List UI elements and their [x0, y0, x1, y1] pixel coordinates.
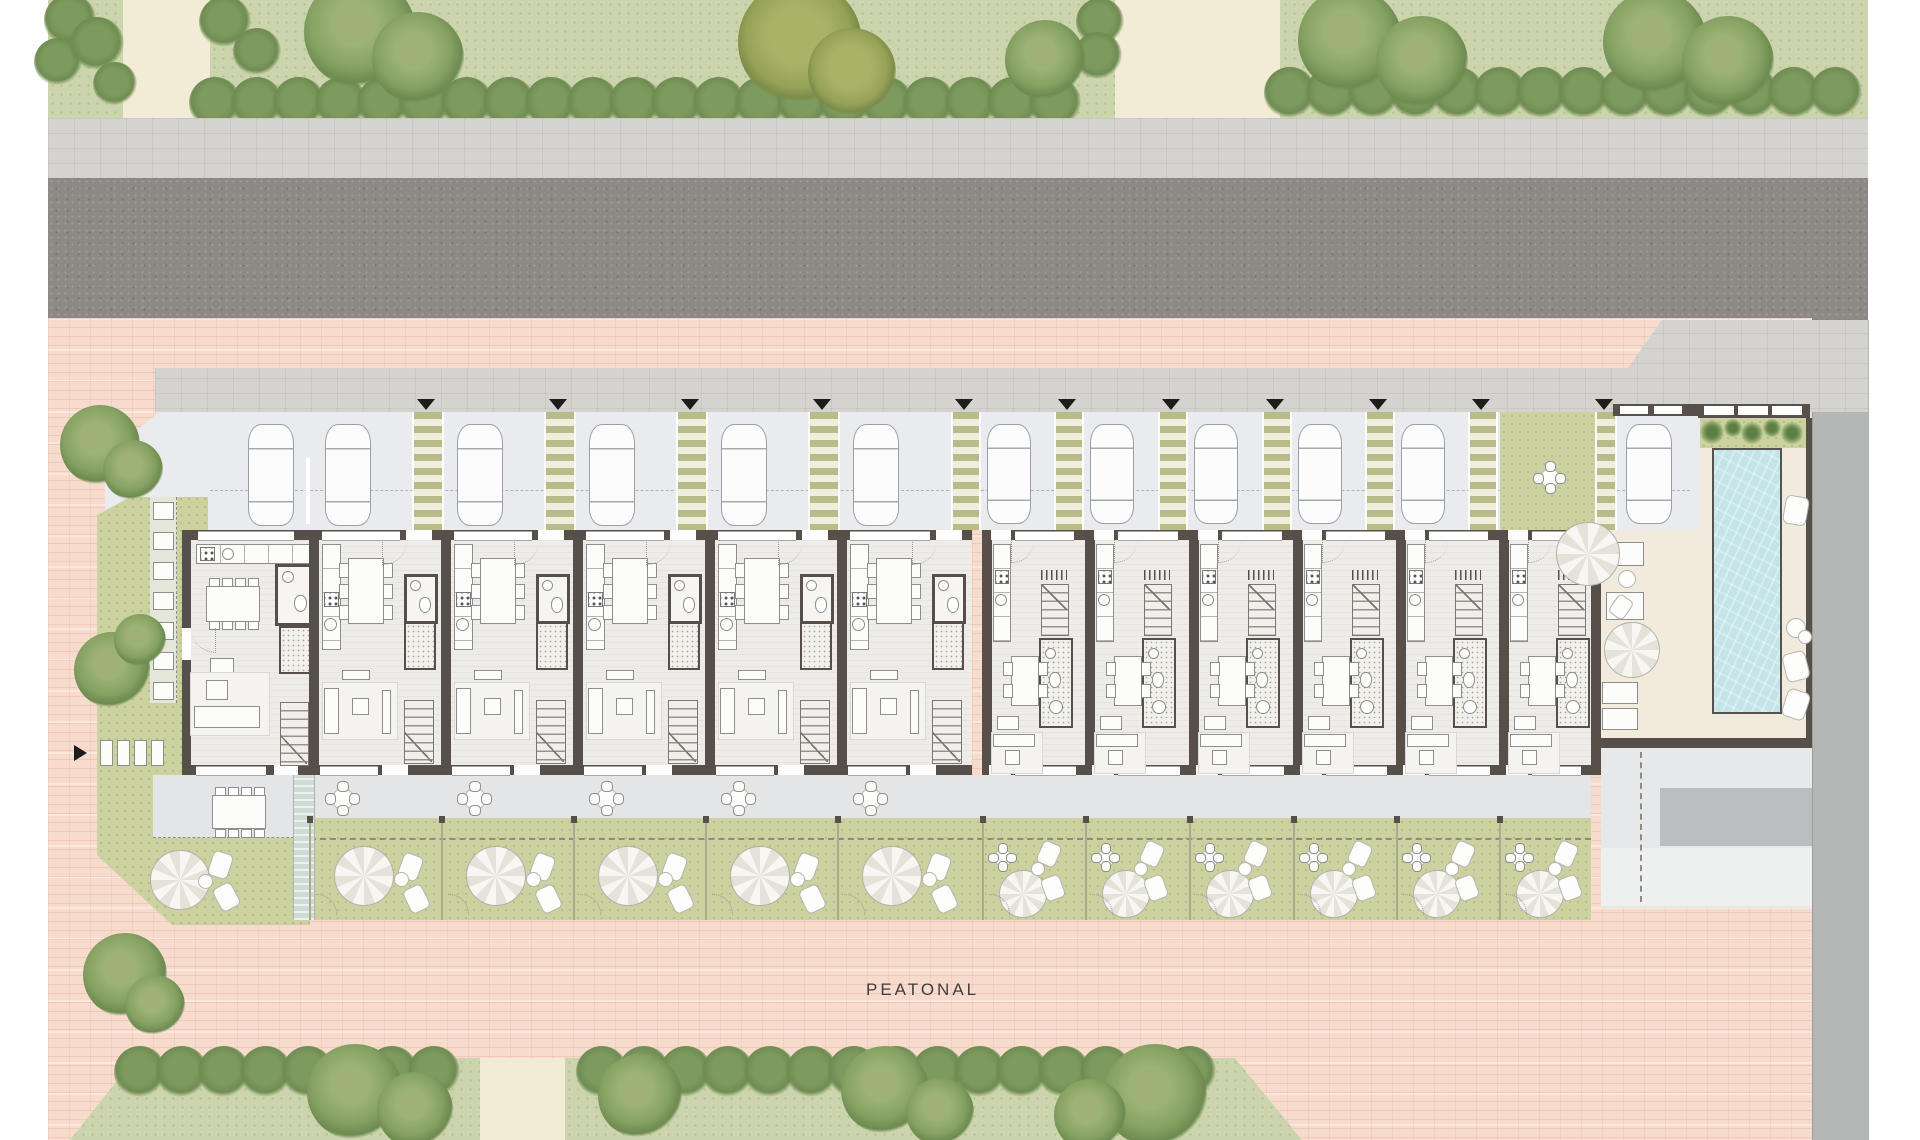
shower-room [800, 622, 832, 670]
toilet-icon [1152, 672, 1164, 688]
bistro-chair [1205, 843, 1215, 854]
door-gap [538, 530, 564, 540]
coffee-table [1005, 750, 1020, 765]
dining-table [1114, 656, 1142, 706]
bistro-chair [589, 793, 600, 805]
chair [248, 621, 259, 630]
park-path [1115, 0, 1280, 118]
window [1772, 406, 1802, 415]
door-gap [382, 765, 408, 775]
bistro-chair [1545, 483, 1556, 494]
car [721, 424, 767, 526]
garden-fence [309, 818, 311, 920]
chair [779, 563, 789, 578]
window [848, 766, 906, 776]
pouf [1548, 862, 1562, 876]
stove-icon [1409, 570, 1423, 584]
chair [1210, 662, 1220, 676]
sofa [1510, 734, 1552, 747]
sink-icon [720, 618, 733, 631]
garden-dash-line [310, 838, 1591, 840]
bathroom [536, 574, 570, 624]
chair [779, 605, 789, 620]
entry-path [1595, 412, 1617, 530]
deck-parasol [1604, 622, 1660, 678]
garden-fence [982, 818, 984, 920]
stair-diag [1455, 584, 1481, 610]
bistro-chair [745, 793, 756, 805]
bistro-chair [721, 793, 732, 805]
garden-fence [837, 818, 839, 920]
tree-icon [1376, 16, 1468, 108]
bistro-chair [325, 793, 336, 805]
console [738, 670, 766, 680]
entry-arrow [1472, 399, 1490, 410]
bistro-chair [1195, 853, 1206, 863]
fence-post [1291, 816, 1297, 823]
pedestrian-street-label: PEATONAL [866, 980, 979, 1000]
shower-room [536, 622, 568, 670]
bistro-chair [1101, 861, 1111, 872]
kitchen-counter [1510, 544, 1528, 642]
console [1204, 716, 1226, 730]
tree-icon [372, 12, 464, 104]
terrace-bistro-table [590, 782, 622, 814]
sofa [852, 688, 867, 734]
chair [383, 605, 393, 620]
shower-room [932, 622, 964, 670]
console [474, 670, 502, 680]
bathroom [1350, 638, 1384, 728]
car [457, 424, 503, 526]
bistro-chair [1402, 853, 1413, 863]
dining-table [480, 558, 516, 624]
entry-arrow [813, 399, 831, 410]
chair [603, 605, 613, 620]
shower-room [668, 622, 700, 670]
car [589, 424, 635, 526]
window [584, 766, 642, 776]
hedge-icon [93, 62, 137, 106]
bathroom [404, 574, 438, 624]
entry-arrow [1595, 399, 1613, 410]
sink-icon [1148, 648, 1159, 659]
garden-fence [1499, 818, 1501, 920]
dining-table [1528, 656, 1556, 706]
sofa [1407, 734, 1449, 747]
chair [911, 563, 921, 578]
bistro-chair [1109, 853, 1120, 863]
bathroom [800, 574, 834, 624]
side-street-east [1812, 320, 1869, 1140]
entry-arrow [74, 745, 87, 761]
tree-icon [377, 1072, 453, 1140]
sink-icon [588, 618, 601, 631]
plan-layers [0, 0, 1920, 1140]
entry-arrow [1266, 399, 1284, 410]
unit-U07 [983, 530, 1086, 775]
stair-diag [932, 732, 960, 762]
stepping-stone [153, 532, 174, 550]
fence-post [835, 816, 841, 823]
stove-icon [200, 547, 215, 561]
sofa [720, 688, 735, 734]
bistro-chair [1420, 853, 1431, 863]
stair-diag [404, 732, 432, 762]
unit-U02 [310, 530, 442, 775]
stepping-stone [153, 502, 174, 520]
chair [515, 584, 525, 599]
stair-diag [1558, 584, 1584, 610]
entry-path [1468, 412, 1498, 530]
door-gap [670, 530, 696, 540]
entry-path [808, 412, 840, 530]
service-dash [1640, 752, 1642, 902]
chair [867, 605, 877, 620]
car [1090, 424, 1134, 524]
stair-diag [536, 732, 564, 762]
chair [1106, 662, 1116, 676]
sofa [1304, 734, 1346, 747]
chair [867, 584, 877, 599]
pouf [198, 874, 213, 889]
stair-diag [800, 732, 828, 762]
stove-icon [324, 592, 339, 607]
shower-tray [1256, 700, 1270, 714]
unit-U09 [1190, 530, 1294, 775]
chair [209, 578, 220, 587]
chair [647, 563, 657, 578]
chair [248, 578, 259, 587]
shower-tray [1566, 700, 1580, 714]
pouf [1031, 862, 1045, 876]
toilet-icon [1256, 672, 1268, 688]
stair-diag [668, 732, 696, 762]
chair [1314, 662, 1324, 676]
coffee-table [206, 680, 228, 700]
fence-post [703, 816, 709, 823]
sun-lounger [1602, 682, 1638, 704]
sidewalk-north [48, 118, 1868, 178]
tv-unit [210, 658, 234, 673]
tree-icon [1005, 20, 1085, 100]
pouf [394, 872, 409, 887]
door-gap [274, 765, 298, 775]
chair [1038, 684, 1048, 698]
chair [215, 829, 226, 838]
tree-icon [598, 1054, 682, 1138]
bistro-chair [337, 805, 349, 816]
unit-U04 [574, 530, 706, 775]
dining-table [1322, 656, 1350, 706]
stove-icon [1202, 570, 1216, 584]
pouf [1445, 862, 1459, 876]
party-wall [441, 530, 451, 775]
entry-path [1262, 412, 1292, 530]
chair [339, 605, 349, 620]
bistro-chair [1299, 853, 1310, 863]
bathroom [1039, 638, 1073, 728]
garden-bistro-table [1092, 844, 1118, 870]
tv-unit [382, 690, 391, 734]
stair-diag [1248, 584, 1274, 610]
stove-icon [588, 592, 603, 607]
chair [235, 621, 246, 630]
coat-rack [1041, 570, 1067, 580]
bistro-chair [1205, 861, 1215, 872]
door-gap [1198, 530, 1218, 540]
sink-icon [938, 580, 949, 591]
entry-path [1158, 412, 1188, 530]
party-wall [705, 530, 715, 775]
service-walk [1601, 848, 1812, 906]
coffee-table [748, 698, 765, 715]
bistro-chair [865, 805, 877, 816]
dining-table [1011, 656, 1039, 706]
toilet-icon [1049, 672, 1061, 688]
garden-fence [1293, 818, 1295, 920]
bistro-chair [988, 853, 999, 863]
chair [471, 563, 481, 578]
bathroom [932, 574, 966, 624]
coffee-table [880, 698, 897, 715]
service-ramp [1660, 788, 1812, 846]
car [1298, 424, 1342, 524]
stepping-stone [134, 740, 147, 766]
coffee-table [484, 698, 501, 715]
unit-U11 [1397, 530, 1500, 775]
stove-icon [1306, 570, 1320, 584]
chair [254, 829, 265, 838]
parking-separator [306, 458, 310, 524]
stove-icon [852, 592, 867, 607]
sink-icon [1306, 594, 1318, 606]
bistro-chair [1412, 843, 1422, 854]
terrace-bistro-table [326, 782, 358, 814]
pouf [922, 872, 937, 887]
garden-bistro-table [1300, 844, 1326, 870]
garden-bistro-table [1196, 844, 1222, 870]
pouf [1342, 862, 1356, 876]
chair [339, 563, 349, 578]
dining-table [1425, 656, 1453, 706]
car [1401, 424, 1445, 524]
unit-U03 [442, 530, 574, 775]
palm-icon [1740, 421, 1764, 445]
sink-icon [1409, 594, 1421, 606]
courtyard-parasol [1556, 522, 1620, 586]
stepping-stone [153, 592, 174, 610]
coffee-table [352, 698, 369, 715]
garden-fence [1085, 818, 1087, 920]
courtyard-table [1534, 462, 1564, 492]
sink-icon [1098, 594, 1110, 606]
toilet-icon [947, 597, 959, 613]
sink-icon [1252, 648, 1263, 659]
pouf [1238, 862, 1252, 876]
door-gap [646, 765, 672, 775]
bistro-chair [1006, 853, 1017, 863]
terrace-bistro-table [458, 782, 490, 814]
unit-U06 [838, 530, 972, 775]
stepping-stone [153, 682, 174, 700]
chair [647, 584, 657, 599]
chair [471, 584, 481, 599]
bathroom [275, 564, 313, 626]
sink-icon [222, 548, 234, 560]
chair [471, 605, 481, 620]
kitchen-counter [1200, 544, 1218, 642]
water-rill [293, 775, 315, 920]
chair [1245, 662, 1255, 676]
window [198, 531, 294, 541]
sofa [993, 734, 1035, 747]
chair [603, 584, 613, 599]
sink-icon [456, 618, 469, 631]
entry-path [1365, 412, 1395, 530]
dining-table [348, 558, 384, 624]
pouf [1798, 630, 1812, 644]
bistro-chair [1317, 853, 1328, 863]
bathroom [1246, 638, 1280, 728]
sink-icon [1459, 648, 1470, 659]
chair [515, 605, 525, 620]
chair [1417, 662, 1427, 676]
entry-arrow [1369, 399, 1387, 410]
bistro-chair [1523, 853, 1534, 863]
sink-icon [1045, 648, 1056, 659]
coffee-table [1108, 750, 1123, 765]
chair [1106, 684, 1116, 698]
unit-U10 [1294, 530, 1397, 775]
bistro-chair [998, 861, 1008, 872]
coat-rack [1455, 570, 1481, 580]
party-wall [573, 530, 583, 775]
terrace-bistro-table [854, 782, 886, 814]
stair-diag [1144, 584, 1170, 610]
door-gap [182, 628, 191, 660]
kitchen-counter [1096, 544, 1114, 642]
garden-fence [1396, 818, 1398, 920]
bathroom [1142, 638, 1176, 728]
chair [1555, 662, 1565, 676]
terrace-strip [310, 775, 1591, 818]
bistro-chair [469, 805, 481, 816]
sink-icon [1356, 648, 1367, 659]
chair [235, 578, 246, 587]
bistro-chair [1505, 853, 1516, 863]
stepping-stone [151, 740, 164, 766]
console [1100, 716, 1122, 730]
fence-post [439, 816, 445, 823]
pouf [526, 872, 541, 887]
window [1704, 406, 1734, 415]
shower-room [279, 626, 311, 674]
toilet-icon [815, 597, 827, 613]
chair [383, 563, 393, 578]
chair [1520, 662, 1530, 676]
chair [241, 829, 252, 838]
bistro-chair [1412, 861, 1422, 872]
fence-post [1083, 816, 1089, 823]
tree-icon [1682, 16, 1774, 108]
bistro-chair [1091, 853, 1102, 863]
chair [735, 584, 745, 599]
stove-icon [720, 592, 735, 607]
unit-U01 [182, 530, 310, 775]
bistro-chair [457, 793, 468, 805]
chair [1038, 662, 1048, 676]
sun-lounger [1602, 708, 1638, 730]
door-gap [778, 765, 804, 775]
bathroom [1556, 638, 1590, 728]
pouf [658, 872, 673, 887]
bistro-chair [1101, 843, 1111, 854]
stepping-stone [100, 740, 113, 766]
garden-fence [441, 818, 443, 920]
console [870, 670, 898, 680]
bistro-chair [481, 793, 492, 805]
fence-post [1394, 816, 1400, 823]
console [342, 670, 370, 680]
pool-water [1712, 448, 1782, 714]
coat-rack [1352, 570, 1378, 580]
guest-car [1626, 424, 1672, 524]
stove-icon [1098, 570, 1112, 584]
chair [1349, 684, 1359, 698]
car [248, 424, 294, 526]
tree-icon [114, 614, 166, 666]
car [325, 424, 371, 526]
chair [222, 578, 233, 587]
pouf [790, 872, 805, 887]
shower-tray [1152, 700, 1166, 714]
bistro-chair [337, 781, 349, 792]
sink-icon [542, 580, 553, 591]
garden-bistro-table [1506, 844, 1532, 870]
coffee-table [1522, 750, 1537, 765]
garden-bistro-table [989, 844, 1015, 870]
bistro-chair [613, 793, 624, 805]
fence-post [571, 816, 577, 823]
bistro-chair [1545, 461, 1556, 472]
window [1738, 406, 1768, 415]
bistro-chair [1533, 473, 1544, 484]
chair [735, 563, 745, 578]
chair [254, 787, 265, 796]
console [606, 670, 634, 680]
garden-bistro-table [1403, 844, 1429, 870]
entry-arrow [681, 399, 699, 410]
fence-post [1187, 816, 1193, 823]
door-gap [406, 530, 432, 540]
bistro-chair [1555, 473, 1566, 484]
entry-path [951, 412, 981, 530]
party-wall [837, 530, 847, 775]
shower-room [404, 622, 436, 670]
stair-diag [1041, 584, 1067, 610]
palm-icon [1699, 419, 1725, 445]
sofa [194, 706, 260, 728]
entry-arrow [955, 399, 973, 410]
garden-parasol [862, 846, 922, 906]
console [1308, 716, 1330, 730]
entry-arrow [549, 399, 567, 410]
kitchen-counter [1304, 544, 1322, 642]
sink-icon [674, 580, 685, 591]
toilet-icon [419, 597, 431, 613]
chair [647, 605, 657, 620]
